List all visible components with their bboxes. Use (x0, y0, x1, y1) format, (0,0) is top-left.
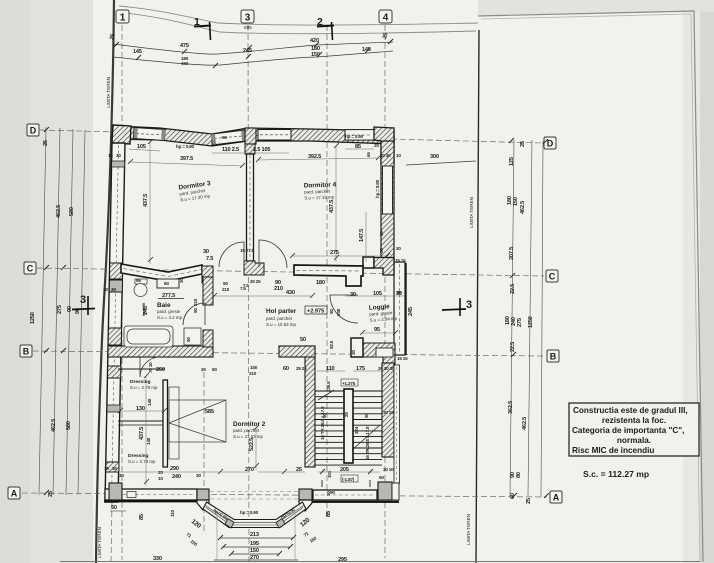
svg-text:50: 50 (300, 337, 306, 343)
svg-text:580: 580 (69, 207, 75, 216)
svg-text:LIMITA TEREN: LIMITA TEREN (106, 77, 111, 108)
svg-text:240: 240 (172, 474, 181, 480)
svg-text:pard. gresie: pard. gresie (157, 309, 181, 314)
svg-text:110: 110 (170, 510, 175, 517)
svg-text:16 TR 28.8 x 17.8: 16 TR 28.8 x 17.8 (365, 426, 370, 460)
svg-text:S.u = 2.78 mp: S.u = 2.78 mp (128, 459, 156, 464)
svg-text:437.5: 437.5 (139, 427, 145, 440)
svg-text:210: 210 (249, 371, 257, 376)
svg-text:pard. parchet: pard. parchet (266, 316, 293, 321)
svg-text:207.5: 207.5 (509, 247, 515, 260)
svg-text:hp = 0.90: hp = 0.90 (345, 134, 364, 139)
svg-text:25: 25 (520, 141, 526, 147)
svg-text:15: 15 (108, 153, 113, 158)
svg-text:140: 140 (146, 437, 151, 445)
svg-text:580: 580 (66, 421, 72, 430)
svg-text:95: 95 (136, 278, 141, 283)
svg-text:25 25: 25 25 (296, 366, 307, 371)
svg-text:hp = 0.90: hp = 0.90 (176, 144, 195, 149)
svg-text:S.u = 4.2 mp: S.u = 4.2 mp (157, 315, 183, 320)
svg-text:2.5 105: 2.5 105 (253, 147, 270, 153)
svg-text:30: 30 (111, 287, 116, 292)
svg-text:437.5: 437.5 (329, 200, 335, 213)
svg-text:80: 80 (516, 472, 522, 478)
svg-text:25: 25 (344, 412, 349, 417)
svg-text:S.u = 10.53 mp: S.u = 10.53 mp (266, 322, 296, 327)
svg-text:22.5: 22.5 (510, 284, 516, 294)
svg-text:224: 224 (354, 426, 359, 434)
svg-text:hp=0.90: hp=0.90 (142, 303, 146, 316)
svg-text:30: 30 (179, 278, 184, 283)
svg-text:135.5: 135.5 (326, 381, 331, 392)
svg-text:Constructia este de gradul III: Constructia este de gradul III, (573, 406, 688, 415)
svg-text:15 15: 15 15 (397, 356, 408, 361)
svg-text:85: 85 (139, 514, 145, 520)
svg-text:150: 150 (181, 61, 189, 66)
svg-text:70 10: 70 10 (148, 362, 153, 373)
svg-text:1250: 1250 (30, 312, 36, 324)
svg-text:60: 60 (283, 366, 289, 372)
svg-text:150: 150 (513, 197, 519, 206)
svg-text:397.5: 397.5 (180, 156, 193, 162)
svg-text:25: 25 (43, 140, 49, 146)
svg-text:D: D (547, 139, 554, 149)
svg-text:150: 150 (250, 365, 258, 370)
svg-text:110: 110 (326, 366, 335, 372)
svg-text:Categoria de importanta "C",: Categoria de importanta "C", (572, 426, 684, 435)
svg-text:C: C (549, 272, 556, 282)
svg-text:275: 275 (57, 305, 63, 314)
svg-text:430: 430 (286, 290, 295, 296)
svg-text:30: 30 (112, 466, 117, 471)
svg-text:19 27.5: 19 27.5 (240, 248, 255, 253)
svg-text:270: 270 (245, 467, 254, 473)
svg-text:60: 60 (212, 367, 217, 372)
svg-text:30: 30 (396, 291, 402, 297)
svg-text:3: 3 (80, 294, 86, 306)
svg-text:20: 20 (158, 470, 163, 475)
svg-text:(-1.87): (-1.87) (342, 477, 355, 482)
svg-text:90: 90 (223, 281, 228, 286)
svg-text:pard. parchet: pard. parchet (304, 189, 331, 195)
svg-text:10: 10 (396, 153, 401, 158)
svg-text:30 30: 30 30 (380, 153, 391, 158)
svg-text:60: 60 (164, 281, 169, 286)
svg-text:25: 25 (526, 498, 532, 504)
svg-text:S.u = 2.79 mp: S.u = 2.79 mp (130, 385, 158, 390)
svg-text:50: 50 (111, 505, 117, 511)
svg-text:20: 20 (374, 143, 379, 148)
svg-text:7.5: 7.5 (206, 256, 213, 262)
svg-text:B: B (550, 352, 557, 362)
svg-text:Baie: Baie (157, 302, 171, 309)
svg-text:180: 180 (316, 280, 325, 286)
svg-text:277.5: 277.5 (162, 293, 175, 299)
svg-text:25: 25 (296, 467, 302, 473)
svg-text:S.u = 17.15 mp: S.u = 17.15 mp (304, 194, 335, 200)
svg-text:90: 90 (193, 308, 198, 313)
svg-text:205: 205 (340, 467, 349, 473)
svg-text:LIMITA TEREN: LIMITA TEREN (469, 197, 474, 228)
svg-text:S.c. = 112.27 mp: S.c. = 112.27 mp (583, 469, 649, 479)
svg-text:30 25: 30 25 (250, 279, 261, 284)
svg-text:65: 65 (366, 152, 371, 157)
svg-text:462.5: 462.5 (522, 417, 528, 430)
svg-text:210: 210 (193, 298, 198, 306)
svg-text:462.5: 462.5 (56, 205, 62, 218)
svg-text:C: C (27, 264, 34, 274)
svg-text:90: 90 (364, 413, 369, 418)
svg-text:175: 175 (356, 366, 365, 372)
svg-text:125: 125 (509, 157, 515, 166)
svg-text:D: D (30, 126, 37, 136)
svg-text:A: A (553, 493, 560, 503)
svg-text:LIMITA TEREN: LIMITA TEREN (97, 527, 102, 558)
svg-text:15 15: 15 15 (395, 258, 406, 263)
svg-text:147.5: 147.5 (359, 229, 365, 242)
svg-text:30 10: 30 10 (383, 467, 394, 472)
svg-text:7.5: 7.5 (240, 286, 246, 291)
svg-text:30: 30 (350, 292, 356, 298)
svg-text:130: 130 (136, 406, 145, 412)
svg-text:30: 30 (379, 248, 384, 253)
svg-text:Risc MIC de incendiu: Risc MIC de incendiu (572, 446, 654, 455)
svg-text:30: 30 (379, 231, 384, 236)
svg-text:522.5: 522.5 (249, 438, 255, 451)
svg-text:1250: 1250 (528, 316, 534, 328)
svg-text:295: 295 (338, 557, 347, 563)
svg-text:3: 3 (245, 13, 251, 24)
svg-text:20 30 30: 20 30 30 (378, 366, 395, 371)
svg-text:150: 150 (250, 548, 259, 554)
svg-text:30 10: 30 10 (383, 410, 394, 415)
svg-text:B: B (23, 347, 30, 357)
svg-text:hp = 0.90: hp = 0.90 (375, 179, 380, 198)
svg-text:101: 101 (327, 470, 332, 478)
svg-text:585: 585 (205, 409, 214, 415)
svg-text:85: 85 (326, 511, 332, 517)
svg-text:30: 30 (119, 473, 124, 478)
svg-text:10: 10 (103, 287, 108, 292)
svg-text:300: 300 (430, 154, 439, 160)
svg-text:+1.375: +1.375 (342, 381, 356, 386)
svg-text:1: 1 (120, 13, 126, 24)
svg-text:30: 30 (396, 246, 401, 251)
svg-text:Hol parter: Hol parter (266, 308, 297, 315)
svg-text:90: 90 (330, 490, 335, 495)
svg-text:3: 3 (466, 299, 472, 311)
svg-text:90: 90 (186, 337, 191, 342)
svg-text:30: 30 (196, 473, 201, 478)
svg-text:A: A (11, 489, 18, 499)
svg-text:110 2.5: 110 2.5 (222, 147, 239, 153)
svg-text:245: 245 (408, 307, 414, 316)
svg-text:210: 210 (274, 286, 283, 292)
svg-text:82.5: 82.5 (329, 340, 334, 349)
svg-text:95: 95 (374, 327, 380, 333)
svg-text:hp = 0.90: hp = 0.90 (240, 510, 259, 515)
svg-text:60: 60 (510, 493, 516, 499)
svg-text:362.5: 362.5 (508, 401, 514, 414)
svg-text:LIMITA TEREN: LIMITA TEREN (466, 514, 471, 545)
svg-text:195: 195 (250, 541, 259, 547)
svg-text:Dormitor 2: Dormitor 2 (233, 421, 266, 428)
svg-text:105: 105 (137, 144, 146, 150)
svg-text:19: 19 (104, 466, 109, 471)
svg-text:10: 10 (158, 476, 163, 481)
svg-text:4: 4 (383, 13, 389, 24)
svg-text:+2.975: +2.975 (307, 309, 324, 315)
svg-text:16 TR 28.8 x 17.8: 16 TR 28.8 x 17.8 (320, 406, 325, 440)
svg-text:90: 90 (222, 135, 227, 140)
svg-text:240: 240 (336, 308, 341, 316)
svg-text:895: 895 (244, 25, 252, 30)
svg-text:437.5: 437.5 (143, 194, 149, 207)
svg-text:105: 105 (373, 291, 382, 297)
svg-text:145: 145 (133, 49, 142, 55)
svg-text:rezistenta la foc.: rezistenta la foc. (602, 416, 666, 425)
svg-text:140: 140 (147, 398, 152, 406)
svg-text:30: 30 (203, 249, 209, 255)
svg-text:25: 25 (48, 491, 54, 497)
svg-text:290: 290 (170, 466, 179, 472)
svg-text:475: 475 (180, 43, 189, 49)
svg-text:90: 90 (329, 309, 334, 314)
svg-text:270: 270 (250, 555, 259, 561)
svg-text:392.5: 392.5 (308, 154, 321, 160)
svg-text:normala.: normala. (617, 436, 651, 445)
svg-text:50: 50 (379, 475, 384, 480)
svg-text:462.5: 462.5 (51, 419, 57, 432)
svg-text:213: 213 (250, 532, 259, 538)
svg-text:85: 85 (355, 144, 361, 150)
svg-text:22.5: 22.5 (510, 342, 516, 352)
svg-text:30: 30 (116, 153, 121, 158)
svg-text:30: 30 (201, 367, 206, 372)
svg-text:30: 30 (351, 350, 356, 355)
svg-text:245: 245 (243, 48, 252, 54)
svg-text:260: 260 (156, 367, 165, 373)
svg-text:275: 275 (517, 318, 523, 327)
svg-text:462.5: 462.5 (520, 201, 526, 214)
svg-text:210: 210 (222, 287, 230, 292)
svg-text:275: 275 (330, 250, 339, 256)
